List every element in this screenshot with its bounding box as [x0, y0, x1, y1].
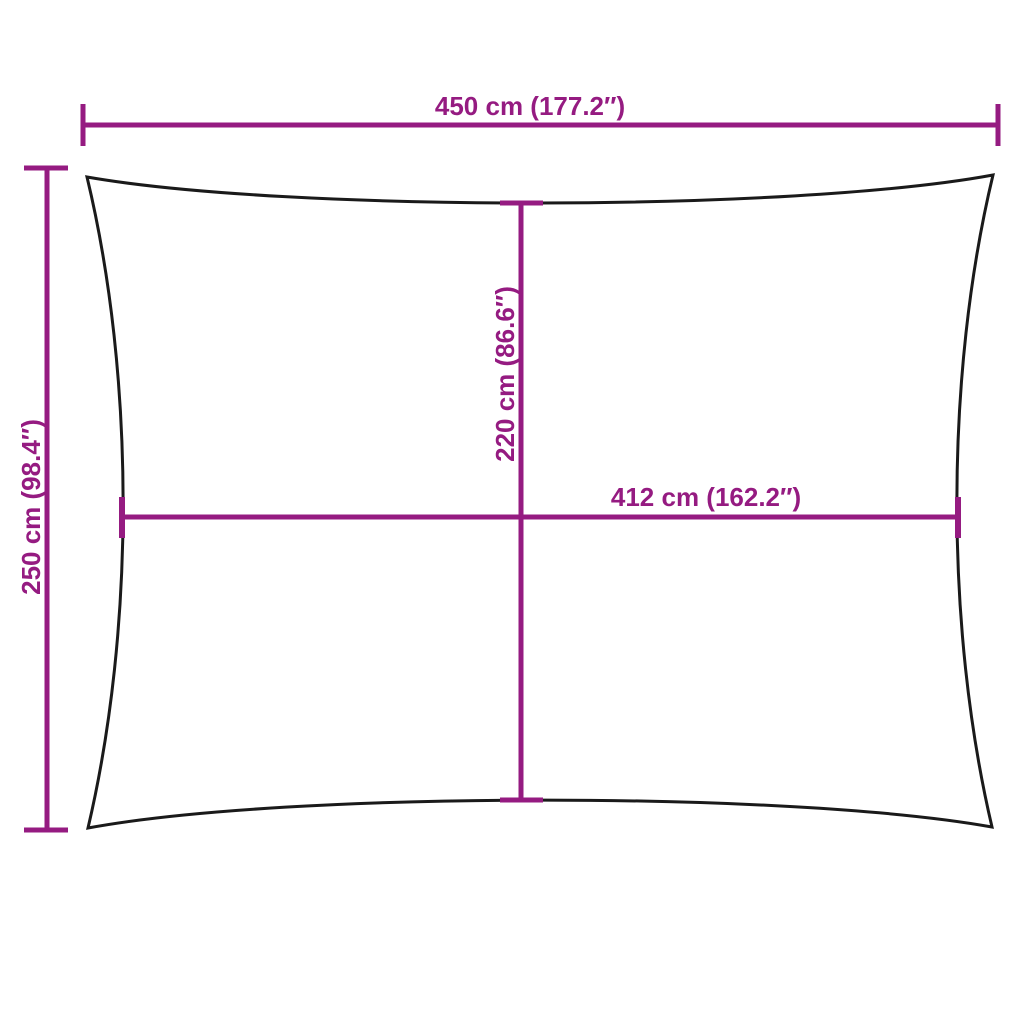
dimension-diagram: 450 cm (177.2″) 250 cm (98.4″) 220 cm (8…	[0, 0, 1024, 1024]
page: 450 cm (177.2″) 250 cm (98.4″) 220 cm (8…	[0, 0, 1024, 1024]
sail-outline	[87, 175, 993, 828]
dimension-label-inner-width: 412 cm (162.2″)	[611, 482, 801, 512]
dimension-overall-width: 450 cm (177.2″)	[83, 91, 998, 146]
dimension-label-inner-height: 220 cm (86.6″)	[490, 286, 520, 462]
dimension-overall-height: 250 cm (98.4″)	[16, 168, 68, 830]
dimension-label-overall-height: 250 cm (98.4″)	[16, 419, 46, 595]
dimension-label-overall-width: 450 cm (177.2″)	[435, 91, 625, 121]
